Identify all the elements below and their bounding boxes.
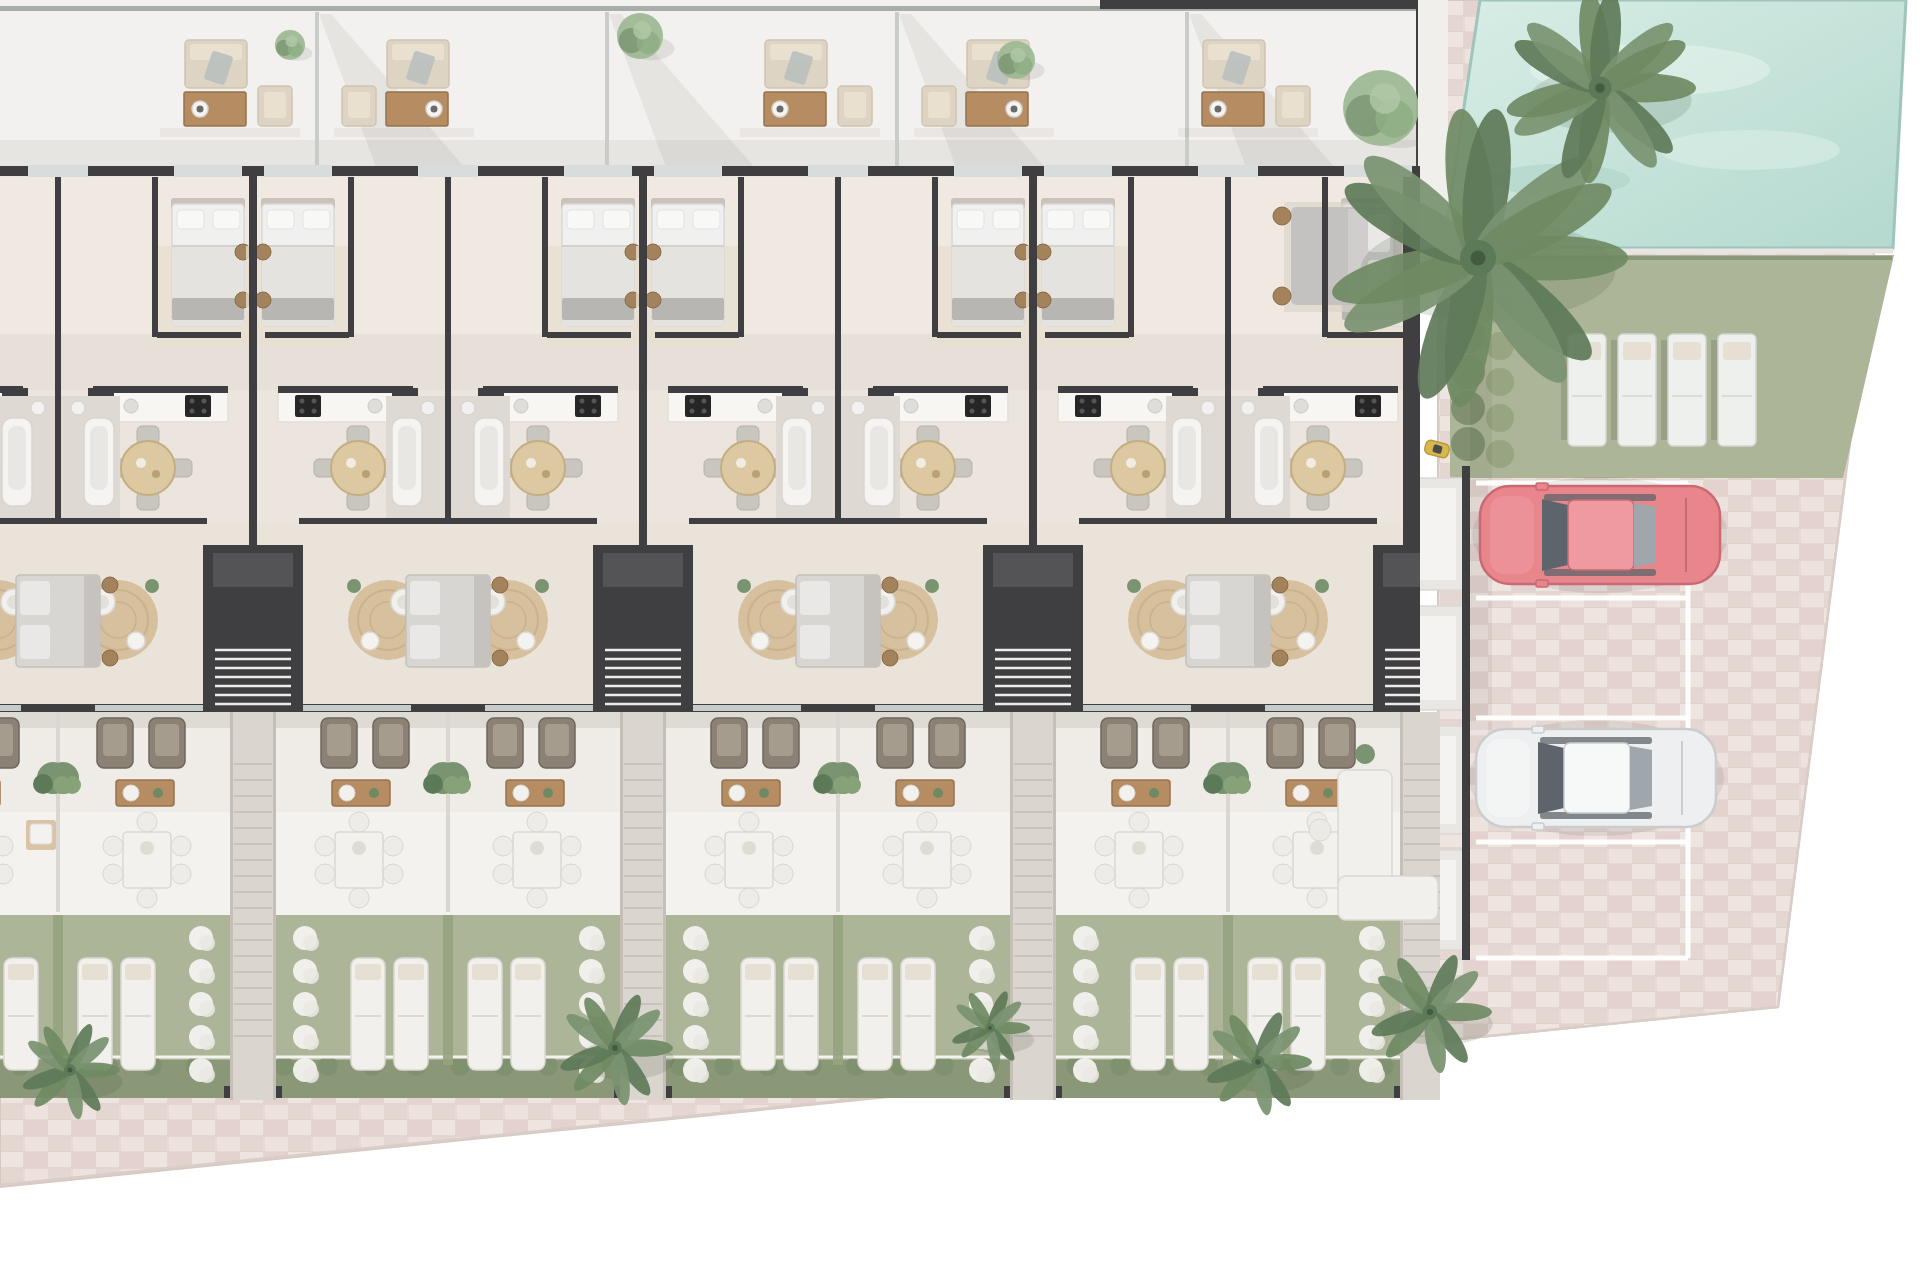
burner <box>312 409 317 414</box>
tree-canopy <box>1370 83 1400 113</box>
lounger-shadow <box>1711 340 1718 440</box>
cooktop <box>575 395 601 417</box>
palm-crown <box>1595 83 1605 93</box>
terrace-plant <box>833 776 851 794</box>
hedge-bump <box>1330 1056 1350 1076</box>
palm-crown <box>68 1068 73 1073</box>
stepping-shrub <box>303 1001 319 1017</box>
roof-armchair-cushion <box>348 92 370 118</box>
floor-plan-svg <box>0 0 1920 1280</box>
gate-post <box>276 1086 282 1098</box>
burner <box>1092 409 1097 414</box>
kitchen-sink <box>1294 399 1308 413</box>
window <box>264 165 332 177</box>
table-plant <box>1149 788 1159 798</box>
sliding-door <box>485 705 601 711</box>
patio-chair <box>773 864 793 884</box>
patio-table-decor <box>1132 841 1146 855</box>
table-setting <box>362 470 370 478</box>
table-plant <box>759 788 769 798</box>
terrace-armchair-cushion <box>1325 724 1349 756</box>
bed-pillow <box>603 210 630 229</box>
palm-crown <box>988 1026 992 1030</box>
palm-crown <box>612 1045 618 1051</box>
bathtub-inner <box>8 426 26 490</box>
bed-pillow <box>303 210 330 229</box>
bed-pillow <box>1083 210 1110 229</box>
lounger-shadow <box>1611 340 1618 440</box>
tree-canopy <box>633 21 651 39</box>
rattan-pouf <box>102 650 118 666</box>
rattan-pouf <box>492 577 508 593</box>
stepping-shrub <box>589 968 605 984</box>
dining-table <box>901 441 955 495</box>
patio-chair <box>315 836 335 856</box>
stepping-shrub <box>589 935 605 951</box>
site-plan-stage <box>0 0 1920 1280</box>
corner-sofa <box>1338 876 1438 920</box>
kitchen-wall <box>0 386 23 393</box>
patio-chair <box>951 864 971 884</box>
terrace-armchair-cushion <box>769 724 793 756</box>
hedge-bump <box>318 1056 338 1076</box>
path-edge <box>1053 712 1056 1100</box>
patio-chair <box>527 812 547 832</box>
window <box>564 165 632 177</box>
bedroom-wall <box>738 177 744 337</box>
stepping-shrub <box>979 968 995 984</box>
roof-table-bowl <box>777 106 784 113</box>
patio-table-decor <box>1310 841 1324 855</box>
stepping-shrub <box>693 1034 709 1050</box>
patio-chair <box>171 836 191 856</box>
terrace-plant <box>813 774 833 794</box>
patio-chair <box>349 812 369 832</box>
kitchen-sink <box>368 399 382 413</box>
bed-throw <box>562 298 634 320</box>
roof-set-shadow <box>914 128 1054 137</box>
stair-core <box>983 545 1083 712</box>
window <box>418 165 478 177</box>
patio-chair <box>103 836 123 856</box>
plant <box>1315 579 1329 593</box>
stepping-shrub <box>1083 1001 1099 1017</box>
sliding-door <box>295 705 411 711</box>
terrace-plant <box>423 774 443 794</box>
table-setting <box>1306 458 1316 468</box>
terrace-divider <box>446 712 450 912</box>
patio-chair <box>739 812 759 832</box>
bedroom-wall <box>1322 177 1328 337</box>
stepping-shrub <box>1369 1034 1385 1050</box>
terrace-armchair-cushion <box>717 724 741 756</box>
window <box>1198 165 1258 177</box>
burner <box>690 399 695 404</box>
hedge-bump <box>274 1056 294 1076</box>
patio-chair <box>137 888 157 908</box>
patio-chair <box>1095 864 1115 884</box>
guest-bed-headboard <box>1254 575 1270 667</box>
bath-sink <box>851 401 865 415</box>
roof-divider-wall <box>605 12 609 170</box>
roof-set-shadow <box>160 128 300 137</box>
garden-lounger-pillow <box>1178 964 1204 980</box>
bedroom-front-wall <box>1327 332 1411 338</box>
unit-divider-wall <box>835 170 841 522</box>
bathtub-inner <box>1260 426 1278 490</box>
terrace-divider <box>836 712 840 912</box>
patio-chair <box>1163 836 1183 856</box>
guest-bed-headboard <box>864 575 880 667</box>
tree-canopy <box>1010 48 1025 63</box>
table-setting <box>542 470 550 478</box>
bathtub-inner <box>788 426 806 490</box>
stair-landing <box>993 553 1073 587</box>
patio-chair <box>171 864 191 884</box>
lounger-pillow <box>1723 342 1751 360</box>
stepping-shrub <box>199 1001 215 1017</box>
patio-chair <box>1129 888 1149 908</box>
terrace-armchair-cushion <box>493 724 517 756</box>
table-setting <box>736 458 746 468</box>
stepping-shrub <box>1083 1067 1099 1083</box>
patio-chair <box>1163 864 1183 884</box>
bath-sink <box>1201 401 1215 415</box>
side-table <box>751 632 769 650</box>
patio-chair <box>917 888 937 908</box>
patio-chair <box>1095 836 1115 856</box>
hedge-bump <box>1110 1056 1130 1076</box>
white-car <box>1468 720 1724 836</box>
burner <box>1080 399 1085 404</box>
table-setting <box>1142 470 1150 478</box>
terrace-armchair-cushion <box>155 724 179 756</box>
stair-landing <box>603 553 683 587</box>
bath-sink <box>461 401 475 415</box>
table-setting <box>152 470 160 478</box>
window <box>808 165 868 177</box>
roof-armchair-cushion <box>844 92 866 118</box>
patio-chair <box>1129 812 1149 832</box>
patio-chair <box>493 864 513 884</box>
dining-table <box>1111 441 1165 495</box>
burner <box>300 399 305 404</box>
tray <box>513 785 529 801</box>
roof-set-shadow <box>334 128 474 137</box>
rattan-pouf <box>492 650 508 666</box>
window <box>174 165 242 177</box>
terrace-armchair-cushion <box>883 724 907 756</box>
patio-table <box>903 832 951 888</box>
table-setting <box>1322 470 1330 478</box>
side-table <box>517 632 535 650</box>
guest-bed-headboard <box>474 575 490 667</box>
patio-chair <box>739 888 759 908</box>
garden-lounger-pillow <box>515 964 541 980</box>
rattan-pouf <box>1272 650 1288 666</box>
stepping-shrub <box>693 1067 709 1083</box>
patio-chair <box>561 864 581 884</box>
stepping-shrub <box>303 1034 319 1050</box>
burner <box>970 409 975 414</box>
cooktop <box>295 395 321 417</box>
burner <box>202 399 207 404</box>
stepping-shrub <box>199 968 215 984</box>
palm-crown <box>1427 1009 1433 1015</box>
roof-set-shadow <box>1178 128 1318 137</box>
garden-lounger-pillow <box>1295 964 1321 980</box>
tray <box>339 785 355 801</box>
terrace-divider <box>1226 712 1230 912</box>
car-mirror <box>1536 483 1548 490</box>
burner <box>312 399 317 404</box>
plant <box>737 579 751 593</box>
patio-table <box>513 832 561 888</box>
burner <box>982 399 987 404</box>
terrace-armchair-cushion <box>379 724 403 756</box>
patio-chair <box>383 864 403 884</box>
path-edge <box>230 712 233 1100</box>
car-mirror <box>1532 726 1544 733</box>
guest-bed-pillow <box>1190 625 1220 659</box>
roof-table-bowl <box>431 106 438 113</box>
side-table <box>907 632 925 650</box>
patio-chair <box>561 836 581 856</box>
bed-pillow <box>267 210 294 229</box>
roof-terrace-strip <box>0 0 1438 172</box>
lounger-pillow <box>1623 342 1651 360</box>
cooktop <box>1355 395 1381 417</box>
kitchen-wall <box>873 386 1008 393</box>
rattan-pouf <box>882 650 898 666</box>
patio-table-decor <box>920 841 934 855</box>
stepping-shrub <box>1083 935 1099 951</box>
terrace-armchair-cushion <box>1159 724 1183 756</box>
patio-chair <box>137 812 157 832</box>
window <box>28 165 88 177</box>
bed-throw <box>1042 298 1114 320</box>
terrace-armchair-cushion <box>327 724 351 756</box>
patio-chair <box>315 864 335 884</box>
gate-post <box>1004 1086 1010 1098</box>
stair-landing <box>213 553 293 587</box>
rattan-pouf <box>255 244 271 260</box>
patio-table <box>335 832 383 888</box>
rattan-pouf <box>1273 207 1291 225</box>
burner <box>982 409 987 414</box>
guest-bed-pillow <box>20 625 50 659</box>
stepping-shrub <box>303 968 319 984</box>
guest-bed-pillow <box>410 625 440 659</box>
car-rear-window <box>1630 746 1652 810</box>
terrace-plant <box>33 774 53 794</box>
path-edge <box>273 712 276 1100</box>
terrace-plant <box>1223 776 1241 794</box>
terrace-plant <box>443 776 461 794</box>
table-plant <box>933 788 943 798</box>
unit-divider-wall <box>55 170 61 522</box>
red-car <box>1472 477 1728 593</box>
table-plant <box>1323 788 1333 798</box>
bed-pillow <box>657 210 684 229</box>
rattan-pouf <box>1035 292 1051 308</box>
bathtub-inner <box>1178 426 1196 490</box>
guest-bed-pillow <box>20 581 50 615</box>
stepping-shrub <box>693 968 709 984</box>
roof-wall-segment <box>1100 0 1418 9</box>
bathtub-inner <box>480 426 498 490</box>
plant <box>1127 579 1141 593</box>
gate-post <box>666 1086 672 1098</box>
kitchen-sink <box>758 399 772 413</box>
palm-crown <box>1255 1059 1260 1064</box>
guest-bed-pillow <box>800 625 830 659</box>
bathroom-wall <box>1162 518 1294 524</box>
terrace-armchair-cushion <box>1273 724 1297 756</box>
burner <box>970 399 975 404</box>
sliding-door <box>875 705 991 711</box>
bed-pillow <box>1047 210 1074 229</box>
tray <box>729 785 745 801</box>
lounger-shadow <box>1661 340 1668 440</box>
patio-table-decor <box>742 841 756 855</box>
kitchen-sink <box>904 399 918 413</box>
garden-lounger-pillow <box>472 964 498 980</box>
garden-lounger-pillow <box>398 964 424 980</box>
corner-sofa <box>1338 770 1392 890</box>
sliding-door <box>0 705 21 711</box>
car-mirror <box>1532 823 1544 830</box>
parking-back-wall <box>1462 466 1470 960</box>
burner <box>702 409 707 414</box>
kitchen-wall <box>1058 386 1193 393</box>
bath-sink <box>1241 401 1255 415</box>
bedroom-front-wall <box>265 332 349 338</box>
plant <box>145 579 159 593</box>
patio-chair <box>1273 864 1293 884</box>
tray <box>1293 785 1309 801</box>
stepping-shrub <box>199 1067 215 1083</box>
stepping-shrub <box>693 935 709 951</box>
porch-floor <box>1416 488 1456 580</box>
car-mirror <box>1536 580 1548 587</box>
bedroom-front-wall <box>1045 332 1129 338</box>
burner <box>592 399 597 404</box>
building-shadow <box>0 712 1420 728</box>
terrace-armchair-cushion <box>1107 724 1131 756</box>
stair-core <box>203 545 303 712</box>
building <box>0 165 1598 712</box>
terrace-armchair-cushion <box>545 724 569 756</box>
bedroom-wall <box>1128 177 1134 337</box>
patio-chair <box>773 836 793 856</box>
roof-armchair-cushion <box>264 92 286 118</box>
patio-table <box>725 832 773 888</box>
gate-post <box>224 1086 230 1098</box>
garden-divider-hedge <box>443 915 453 1065</box>
burner <box>1092 399 1097 404</box>
rattan-pouf <box>102 577 118 593</box>
gate-post <box>1056 1086 1062 1098</box>
guest-bed-pillow <box>800 581 830 615</box>
patio-table-decor <box>352 841 366 855</box>
table-setting <box>916 458 926 468</box>
table-setting <box>136 458 146 468</box>
roof-table-bowl <box>1011 106 1018 113</box>
table-setting <box>752 470 760 478</box>
bed-throw <box>262 298 334 320</box>
roof-set-shadow <box>740 128 880 137</box>
burner <box>1360 399 1365 404</box>
bed-pillow <box>993 210 1020 229</box>
table-plant <box>153 788 163 798</box>
tray <box>1119 785 1135 801</box>
burner <box>580 399 585 404</box>
stepping-shrub <box>199 935 215 951</box>
garden-divider-hedge <box>833 915 843 1065</box>
porch-floor <box>1416 616 1456 700</box>
kitchen-sink <box>1148 399 1162 413</box>
burner <box>300 409 305 414</box>
patio-table <box>1115 832 1163 888</box>
roof-divider-wall <box>315 12 319 170</box>
rattan-pouf <box>1035 244 1051 260</box>
burner <box>702 399 707 404</box>
patio-chair <box>527 888 547 908</box>
window <box>654 165 722 177</box>
cooktop <box>965 395 991 417</box>
kitchen-sink <box>514 399 528 413</box>
rattan-pouf <box>645 292 661 308</box>
bathroom-wall <box>772 518 904 524</box>
side-table <box>127 632 145 650</box>
garden-lounger-pillow <box>905 964 931 980</box>
kitchen-wall <box>93 386 228 393</box>
patio-chair <box>883 836 903 856</box>
plant <box>925 579 939 593</box>
palm-crown <box>1471 251 1486 266</box>
patio-table-decor <box>140 841 154 855</box>
roof-divider-wall <box>895 12 899 170</box>
bed-throw <box>652 298 724 320</box>
bedroom-front-wall <box>937 332 1021 338</box>
car-roof <box>1564 743 1630 813</box>
sliding-door <box>1075 705 1191 711</box>
table-setting <box>346 458 356 468</box>
patio-chair <box>1307 888 1327 908</box>
stepping-shrub <box>1369 935 1385 951</box>
table-plant <box>369 788 379 798</box>
terrace-armchair-cushion <box>935 724 959 756</box>
garden-lounger-pillow <box>745 964 771 980</box>
car-windshield <box>1542 499 1568 571</box>
stepping-shrub <box>1369 1067 1385 1083</box>
burner <box>1360 409 1365 414</box>
plant <box>1355 744 1375 764</box>
kitchen-wall <box>483 386 618 393</box>
patio-floor <box>0 812 1420 915</box>
kitchen-wall <box>668 386 803 393</box>
burner <box>190 409 195 414</box>
guest-bed-headboard <box>84 575 100 667</box>
side-table <box>361 632 379 650</box>
burner <box>690 409 695 414</box>
stair-core <box>593 545 693 712</box>
side-table <box>1297 632 1315 650</box>
dining-table <box>511 441 565 495</box>
burner <box>592 409 597 414</box>
bath-sink <box>811 401 825 415</box>
